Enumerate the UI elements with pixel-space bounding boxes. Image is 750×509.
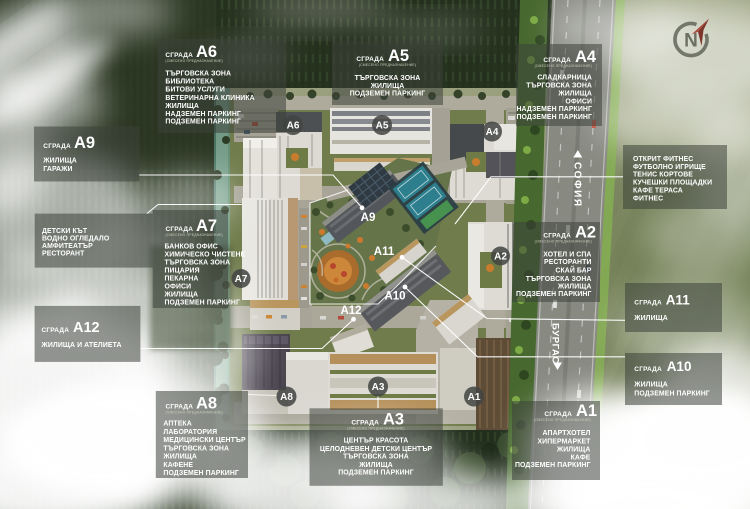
svg-text:A9: A9	[361, 212, 376, 224]
svg-text:СГРАДА: СГРАДА	[356, 56, 384, 63]
svg-text:A4: A4	[486, 127, 499, 138]
svg-text:ХИПЕРМАРКЕТ: ХИПЕРМАРКЕТ	[537, 438, 591, 445]
svg-text:ФИТНЕС: ФИТНЕС	[633, 196, 663, 203]
svg-text:A3: A3	[372, 382, 385, 393]
svg-text:ЖИЛИЩА: ЖИЛИЩА	[633, 315, 668, 322]
svg-text:А9: А9	[74, 134, 95, 152]
svg-text:ОТКРИТ ФИТНЕС: ОТКРИТ ФИТНЕС	[633, 156, 693, 163]
svg-text:БУРГАС: БУРГАС	[550, 323, 561, 364]
svg-text:A7: A7	[235, 274, 248, 285]
svg-text:БИБЛИОТЕКА: БИБЛИОТЕКА	[165, 79, 214, 86]
svg-text:А10: А10	[667, 359, 692, 374]
svg-text:БАНКОВ ОФИС: БАНКОВ ОФИС	[165, 244, 218, 251]
svg-text:ОФИСИ: ОФИСИ	[165, 284, 192, 291]
svg-text:СГРАДА: СГРАДА	[42, 327, 70, 334]
svg-text:ТЪРГОВСКА ЗОНА: ТЪРГОВСКА ЗОНА	[355, 75, 421, 82]
svg-text:ПОДЗЕМЕН ПАРКИНГ: ПОДЗЕМЕН ПАРКИНГ	[516, 291, 592, 298]
svg-text:A11: A11	[374, 246, 395, 258]
svg-text:СЛАДКАРНИЦА: СЛАДКАРНИЦА	[537, 75, 592, 82]
svg-text:СКАЙ БАР: СКАЙ БАР	[555, 265, 591, 274]
svg-text:N: N	[684, 31, 698, 52]
svg-text:ЛАБОРАТОРИЯ: ЛАБОРАТОРИЯ	[163, 429, 217, 436]
svg-text:ТЪРГОВСКА ЗОНА: ТЪРГОВСКА ЗОНА	[343, 454, 409, 461]
svg-text:ЖИЛИЩА: ЖИЛИЩА	[42, 158, 77, 165]
svg-text:ЖИЛИЩА: ЖИЛИЩА	[358, 462, 393, 469]
svg-text:(СМЕСЕНО ПРЕДНАЗНАЧЕНИЕ): (СМЕСЕНО ПРЕДНАЗНАЧЕНИЕ)	[534, 418, 591, 422]
svg-text:ТЕНИС КОРТОВЕ: ТЕНИС КОРТОВЕ	[633, 172, 693, 179]
svg-text:А11: А11	[666, 293, 691, 308]
svg-text:ТЪРГОВСКА ЗОНА: ТЪРГОВСКА ЗОНА	[526, 276, 592, 283]
svg-text:ХИМИЧЕСКО ЧИСТЕНЕ: ХИМИЧЕСКО ЧИСТЕНЕ	[165, 252, 246, 259]
svg-text:КАФЕНЕ: КАФЕНЕ	[163, 462, 193, 469]
svg-text:A2: A2	[494, 252, 507, 263]
svg-text:ЦЕНТЪР КРАСОТА: ЦЕНТЪР КРАСОТА	[344, 438, 409, 445]
svg-text:ПОДЗЕМЕН ПАРКИНГ: ПОДЗЕМЕН ПАРКИНГ	[338, 470, 414, 477]
svg-text:ЖИЛИЩА: ЖИЛИЩА	[164, 292, 199, 299]
svg-text:РЕСТОРАНТИ: РЕСТОРАНТИ	[544, 259, 592, 266]
svg-text:ПИЦАРИЯ: ПИЦАРИЯ	[165, 268, 200, 275]
svg-text:ПЕКАРНА: ПЕКАРНА	[165, 276, 199, 283]
svg-text:ПОДЗЕМЕН ПАРКИНГ: ПОДЗЕМЕН ПАРКИНГ	[634, 391, 710, 398]
svg-text:A1: A1	[468, 392, 481, 403]
svg-text:ПОДЗЕМЕН ПАРКИНГ: ПОДЗЕМЕН ПАРКИНГ	[165, 300, 241, 307]
svg-text:ВОДНО ОГЛЕДАЛО: ВОДНО ОГЛЕДАЛО	[42, 235, 110, 242]
svg-text:МЕДИЦИНСКИ ЦЕНТЪР: МЕДИЦИНСКИ ЦЕНТЪР	[163, 437, 246, 444]
svg-text:ЖИЛИЩА: ЖИЛИЩА	[557, 284, 592, 291]
svg-text:(СМЕСЕНО ПРЕДНАЗНАЧЕНИЕ): (СМЕСЕНО ПРЕДНАЗНАЧЕНИЕ)	[165, 59, 222, 63]
svg-text:ЖИЛИЩА: ЖИЛИЩА	[162, 454, 197, 461]
svg-text:НАДЗЕМЕН ПАРКИНГ: НАДЗЕМЕН ПАРКИНГ	[516, 106, 592, 113]
svg-text:ОФИСИ: ОФИСИ	[565, 98, 592, 105]
svg-text:A6: A6	[287, 121, 300, 132]
svg-text:КАФЕ: КАФЕ	[571, 454, 591, 461]
svg-text:(СМЕСЕНО ПРЕДНАЗНАЧЕНИЕ): (СМЕСЕНО ПРЕДНАЗНАЧЕНИЕ)	[359, 63, 416, 67]
svg-text:НАДЗЕМЕН ПАРКИНГ: НАДЗЕМЕН ПАРКИНГ	[165, 111, 241, 118]
svg-text:(СМЕСЕНО ПРЕДНАЗНАЧЕНИЕ): (СМЕСЕНО ПРЕДНАЗНАЧЕНИЕ)	[535, 239, 592, 243]
svg-text:ХОТЕЛ И СПА: ХОТЕЛ И СПА	[543, 252, 591, 259]
svg-text:ГАРАЖИ: ГАРАЖИ	[43, 166, 72, 173]
svg-text:A5: A5	[376, 121, 389, 132]
svg-text:ТЪРГОВСКА ЗОНА: ТЪРГОВСКА ЗОНА	[163, 445, 229, 452]
svg-text:АПТЕКА: АПТЕКА	[163, 421, 191, 428]
svg-text:(СМЕСЕНО ПРЕДНАЗНАЧЕНИЕ): (СМЕСЕНО ПРЕДНАЗНАЧЕНИЕ)	[166, 410, 223, 414]
svg-text:ЖИЛИЩА: ЖИЛИЩА	[164, 103, 199, 110]
svg-text:ТЪРГОВСКА ЗОНА: ТЪРГОВСКА ЗОНА	[165, 260, 231, 267]
svg-text:ДЕТСКИ КЪТ: ДЕТСКИ КЪТ	[42, 228, 88, 235]
svg-text:ПОДЗЕМЕН ПАРКИНГ: ПОДЗЕМЕН ПАРКИНГ	[515, 462, 591, 469]
svg-text:СГРАДА: СГРАДА	[634, 366, 662, 373]
svg-text:АПАРТХОТЕЛ: АПАРТХОТЕЛ	[543, 430, 591, 437]
svg-text:ЖИЛИЩА: ЖИЛИЩА	[556, 447, 591, 454]
svg-text:(СМЕСЕНО ПРЕДНАЗНАЧЕНИЕ): (СМЕСЕНО ПРЕДНАЗНАЧЕНИЕ)	[535, 64, 592, 68]
svg-text:БИТОВИ УСЛУГИ: БИТОВИ УСЛУГИ	[165, 87, 225, 94]
svg-text:A10: A10	[384, 291, 405, 303]
svg-text:A12: A12	[340, 305, 361, 317]
svg-text:ФУТБОЛНО ИГРИЩЕ: ФУТБОЛНО ИГРИЩЕ	[633, 164, 706, 171]
svg-text:ЖИЛИЩА: ЖИЛИЩА	[633, 382, 668, 389]
svg-text:ЖИЛИЩА: ЖИЛИЩА	[557, 90, 592, 97]
svg-text:АМФИТЕАТЪР: АМФИТЕАТЪР	[42, 243, 93, 250]
svg-text:(СМЕСЕНО ПРЕДНАЗНАЧЕНИЕ): (СМЕСЕНО ПРЕДНАЗНАЧЕНИЕ)	[166, 233, 223, 237]
svg-text:ЦЕЛОДНЕВЕН ДЕТСКИ ЦЕНТЪР: ЦЕЛОДНЕВЕН ДЕТСКИ ЦЕНТЪР	[320, 446, 433, 453]
svg-text:ПОДЗЕМЕН ПАРКИНГ: ПОДЗЕМЕН ПАРКИНГ	[350, 91, 426, 98]
svg-text:СОФИЯ: СОФИЯ	[572, 162, 583, 208]
svg-text:ТЪРГОВСКА ЗОНА: ТЪРГОВСКА ЗОНА	[526, 83, 592, 90]
svg-text:СГРАДА: СГРАДА	[634, 300, 662, 307]
svg-text:ЖИЛИЩА И АТЕЛИЕТА: ЖИЛИЩА И АТЕЛИЕТА	[41, 342, 122, 349]
svg-text:A8: A8	[280, 392, 293, 403]
svg-text:ПОДЗЕМЕН ПАРКИНГ: ПОДЗЕМЕН ПАРКИНГ	[165, 119, 241, 126]
svg-text:А12: А12	[73, 320, 100, 336]
svg-text:КУЧЕШКИ ПЛОЩАДКИ: КУЧЕШКИ ПЛОЩАДКИ	[633, 180, 712, 187]
svg-text:ТЪРГОВСКА ЗОНА: ТЪРГОВСКА ЗОНА	[165, 71, 231, 78]
svg-text:ВЕТЕРИНАРНА КЛИНИКА: ВЕТЕРИНАРНА КЛИНИКА	[165, 95, 254, 102]
svg-text:ПОДЗЕМЕН ПАРКИНГ: ПОДЗЕМЕН ПАРКИНГ	[516, 114, 592, 121]
svg-text:СГРАДА: СГРАДА	[43, 143, 71, 150]
svg-text:РЕСТОРАНТ: РЕСТОРАНТ	[42, 251, 85, 258]
svg-text:КАФЕ ТЕРАСА: КАФЕ ТЕРАСА	[633, 187, 683, 194]
svg-text:ЖИЛИЩА: ЖИЛИЩА	[370, 83, 405, 90]
svg-text:ПОДЗЕМЕН ПАРКИНГ: ПОДЗЕМЕН ПАРКИНГ	[163, 470, 239, 477]
svg-text:(СМЕСЕНО ПРЕДНАЗНАЧЕНИЕ): (СМЕСЕНО ПРЕДНАЗНАЧЕНИЕ)	[347, 426, 404, 430]
